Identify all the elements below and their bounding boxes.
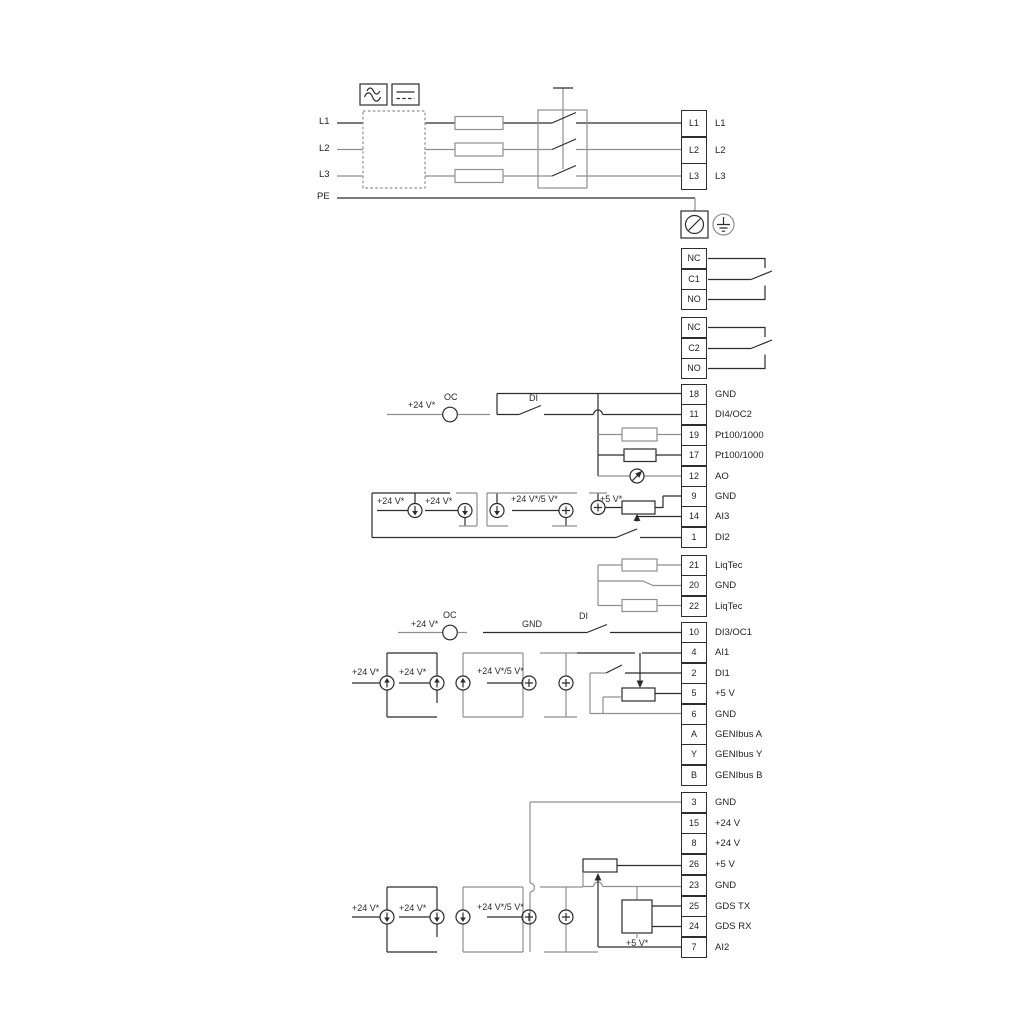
note-24v: +24 V*	[352, 903, 379, 913]
terminal-cell: 26	[681, 854, 707, 875]
emc-filter-box	[363, 111, 425, 188]
terminal-label: +5 V	[715, 683, 735, 704]
input-label-l2: L2	[319, 143, 330, 154]
terminal-label: AI2	[715, 937, 729, 958]
ai1-potentiometer	[590, 653, 681, 714]
ac-symbol-icon	[360, 84, 387, 105]
terminal-label: L1	[715, 110, 726, 137]
terminal-cell: Y	[681, 744, 707, 765]
terminal-label: +24 V	[715, 833, 740, 854]
terminal-cell: L1	[681, 110, 707, 137]
pt100-sensor-1	[598, 428, 681, 441]
terminal-cell: 23	[681, 875, 707, 896]
note-5v: +5 V*	[626, 938, 648, 948]
di2-switch	[372, 529, 681, 538]
note-5v: +5 V*	[600, 494, 622, 504]
diagram-lines	[0, 0, 1024, 1024]
terminal-label: L2	[715, 137, 726, 164]
terminal-cell: A	[681, 724, 707, 745]
ai3-potentiometer	[622, 496, 681, 522]
terminal-cell: 22	[681, 596, 707, 617]
liqtec-sensor-circuit	[598, 559, 681, 612]
terminal-cell: 18	[681, 384, 707, 405]
gnd3-wire	[530, 802, 681, 952]
terminal-label: AO	[715, 466, 729, 487]
note-24v: +24 V*	[399, 667, 426, 677]
terminal-label: AI3	[715, 506, 729, 527]
terminal-label: GND	[715, 384, 736, 405]
terminal-cell: NO	[681, 289, 707, 310]
note-24v: +24 V*	[352, 667, 379, 677]
terminal-label: GDS TX	[715, 896, 750, 917]
terminal-label: DI1	[715, 663, 730, 684]
note-24v: +24 V*	[411, 619, 438, 629]
terminal-label: LiqTec	[715, 555, 742, 576]
note-24v: +24 V*	[399, 903, 426, 913]
terminal-cell: L2	[681, 137, 707, 164]
wiring-diagram: L1 L2 L3 PE +24 V* OC DI +24 V* +24 V* +…	[0, 0, 1024, 1024]
terminal-cell: 14	[681, 506, 707, 527]
terminal-label: L3	[715, 163, 726, 190]
di1-switch	[590, 665, 681, 714]
terminal-cell: NO	[681, 358, 707, 379]
note-24v-5v: +24 V*/5 V*	[477, 666, 524, 676]
note-di: DI	[529, 393, 538, 403]
terminal-label: GENIbus A	[715, 724, 762, 745]
terminal-cell: C2	[681, 338, 707, 359]
note-24v: +24 V*	[408, 400, 435, 410]
terminal-label: Pt100/1000	[715, 445, 764, 466]
ai3-source-group	[372, 493, 622, 538]
analog-output-meter-icon	[598, 469, 681, 483]
terminal-cell: 1	[681, 527, 707, 548]
terminal-cell: C1	[681, 269, 707, 290]
terminal-cell: 6	[681, 704, 707, 725]
terminal-cell: 3	[681, 792, 707, 813]
terminal-label: GENIbus B	[715, 765, 763, 786]
note-24v-5v: +24 V*/5 V*	[511, 494, 558, 504]
note-oc: OC	[443, 610, 457, 620]
terminal-label: +24 V	[715, 813, 740, 834]
terminal-cell: 4	[681, 642, 707, 663]
terminal-label: GND	[715, 704, 736, 725]
terminal-label: GND	[715, 486, 736, 507]
note-24v: +24 V*	[425, 496, 452, 506]
terminal-cell: L3	[681, 163, 707, 190]
terminal-label: DI4/OC2	[715, 404, 752, 425]
terminal-label: DI3/OC1	[715, 622, 752, 643]
note-24v-5v: +24 V*/5 V*	[477, 902, 524, 912]
dc-symbol-icon	[392, 84, 419, 105]
input-label-l3: L3	[319, 169, 330, 180]
relay1-contact	[708, 259, 772, 300]
terminal-cell: 21	[681, 555, 707, 576]
note-di: DI	[579, 611, 588, 621]
screw-terminal-icon	[681, 211, 708, 238]
terminal-cell: 25	[681, 896, 707, 917]
ai2-source-group	[352, 887, 598, 952]
fuse-icons	[455, 117, 503, 183]
terminal-cell: 10	[681, 622, 707, 643]
terminal-cell: 5	[681, 683, 707, 704]
terminal-cell: 7	[681, 937, 707, 958]
mains-wires	[337, 123, 695, 211]
terminal-cell: 2	[681, 663, 707, 684]
terminal-cell: 20	[681, 575, 707, 596]
terminal-label: GND	[715, 875, 736, 896]
gds-sensor-box	[622, 887, 681, 939]
input-label-pe: PE	[317, 191, 330, 202]
note-24v: +24 V*	[377, 496, 404, 506]
terminal-label: +5 V	[715, 854, 735, 875]
note-gnd: GND	[522, 619, 542, 629]
terminal-cell: NC	[681, 248, 707, 269]
terminal-label: DI2	[715, 527, 730, 548]
terminal-cell: 19	[681, 425, 707, 446]
input-label-l1: L1	[319, 116, 330, 127]
terminal-cell: B	[681, 765, 707, 786]
pt100-sensor-2	[598, 449, 681, 462]
terminal-cell: NC	[681, 317, 707, 338]
terminal-cell: 11	[681, 404, 707, 425]
note-oc: OC	[444, 392, 458, 402]
terminal-cell: 12	[681, 466, 707, 487]
relay2-contact	[708, 328, 772, 369]
terminal-label: GND	[715, 792, 736, 813]
disconnect-switch-icon	[538, 88, 587, 188]
terminal-cell: 15	[681, 813, 707, 834]
terminal-cell: 17	[681, 445, 707, 466]
terminal-cell: 24	[681, 916, 707, 937]
earth-ground-icon	[713, 214, 734, 235]
terminal-label: GDS RX	[715, 916, 751, 937]
terminal-label: AI1	[715, 642, 729, 663]
ai2-potentiometer	[583, 859, 681, 947]
terminal-label: LiqTec	[715, 596, 742, 617]
terminal-cell: 9	[681, 486, 707, 507]
terminal-label: GENIbus Y	[715, 744, 762, 765]
terminal-cell: 8	[681, 833, 707, 854]
terminal-label: Pt100/1000	[715, 425, 764, 446]
terminal-label: GND	[715, 575, 736, 596]
ai1-source-group	[352, 653, 681, 717]
